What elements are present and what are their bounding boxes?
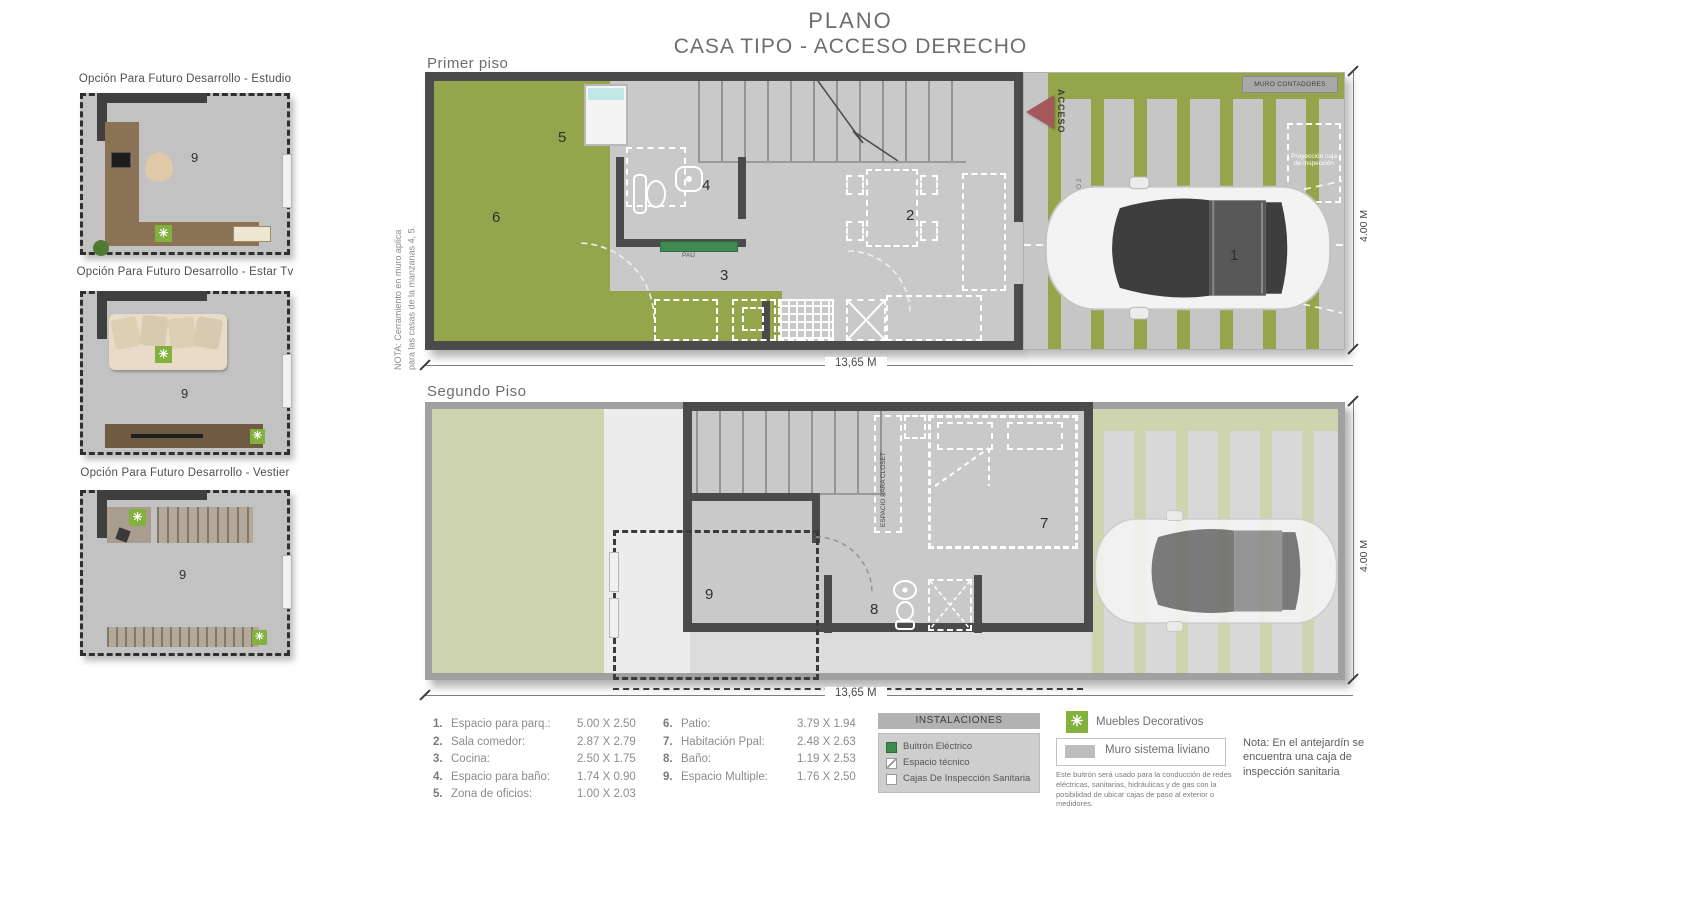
legend-name: Patio: bbox=[681, 716, 797, 734]
cushion bbox=[193, 316, 224, 350]
nightstand bbox=[904, 415, 926, 439]
side-note-line1: NOTA: Cerramiento en muro aplica bbox=[392, 140, 406, 370]
buitron-swatch-icon bbox=[886, 742, 897, 753]
width-dim-f2: 13,65 M bbox=[825, 687, 887, 699]
legend-row: 2.Sala comedor:2.87 X 2.79 bbox=[433, 734, 661, 752]
wall bbox=[974, 575, 982, 633]
room-9-dashed-zone bbox=[613, 530, 819, 680]
first-floor-plan: PAU bbox=[425, 72, 1345, 350]
instalaciones-header: INSTALACIONES bbox=[878, 713, 1040, 729]
nota-antejardin: Nota: En el antejardín se encuentra una … bbox=[1243, 736, 1375, 779]
legend-dim: 1.76 X 2.50 bbox=[797, 769, 881, 787]
muro-liviano-box: Muro sistema liviano bbox=[1056, 738, 1226, 766]
legend-item-label: Espacio técnico bbox=[903, 755, 970, 771]
muro-liviano-swatch-icon bbox=[1065, 745, 1095, 758]
wall bbox=[616, 157, 624, 247]
window bbox=[609, 552, 619, 592]
legend-item-label: Buitrón Eléctrico bbox=[903, 739, 972, 755]
sink bbox=[892, 579, 918, 601]
legend-item-buitron: Buitrón Eléctrico bbox=[886, 739, 1032, 755]
kitchen-sink-counter bbox=[732, 299, 776, 341]
side-note: NOTA: Cerramiento en muro aplica para la… bbox=[392, 140, 422, 370]
espacio-tecnico-swatch-icon bbox=[886, 758, 897, 769]
car-top-view bbox=[1042, 175, 1334, 321]
legend-item-label: Cajas De Inspección Sanitaria bbox=[903, 771, 1030, 787]
legend-name: Habitación Ppal: bbox=[681, 734, 797, 752]
legend-name: Zona de oficios: bbox=[451, 786, 577, 804]
legend-row: 6.Patio:3.79 X 1.94 bbox=[663, 716, 881, 734]
chair bbox=[846, 221, 864, 241]
chair bbox=[145, 152, 173, 182]
muebles-asterisk-icon: ✳ bbox=[155, 346, 172, 363]
first-floor-title: Primer piso bbox=[427, 55, 508, 72]
plant bbox=[93, 240, 109, 256]
height-dim-f1: 4.00 M bbox=[1358, 180, 1370, 242]
option-estartv-miniplan: ✳ 9 ✳ bbox=[80, 291, 290, 455]
muebles-asterisk-icon: ✳ bbox=[1066, 711, 1088, 733]
window bbox=[282, 354, 292, 408]
closet-rail bbox=[107, 627, 259, 647]
option-estudio-label: Opción Para Futuro Desarrollo - Estudio bbox=[60, 73, 310, 85]
legend-row: 1.Espacio para parq.:5.00 X 2.50 bbox=[433, 716, 661, 734]
door-arc bbox=[814, 535, 874, 595]
spaces-legend-col1: 1.Espacio para parq.:5.00 X 2.50 2.Sala … bbox=[433, 716, 661, 804]
desk bbox=[105, 122, 139, 226]
room-number: 9 bbox=[179, 567, 186, 582]
legend-num: 5. bbox=[433, 786, 451, 804]
dim-line-bottom-f1 bbox=[425, 365, 1353, 366]
legend-name: Espacio para parq.: bbox=[451, 716, 577, 734]
grass-band-faded bbox=[1092, 409, 1338, 431]
legend-row: 7.Habitación Ppal:2.48 X 2.63 bbox=[663, 734, 881, 752]
legend-dim: 1.00 X 2.03 bbox=[577, 786, 661, 804]
stove-grid bbox=[778, 299, 834, 341]
legend-num: 6. bbox=[663, 716, 681, 734]
car-top-view-faded bbox=[1092, 505, 1340, 637]
legend-dim: 2.87 X 2.79 bbox=[577, 734, 661, 752]
toilet bbox=[632, 169, 668, 219]
option-estartv-label: Opción Para Futuro Desarrollo - Estar Tv bbox=[60, 266, 310, 278]
legend-name: Cocina: bbox=[451, 751, 577, 769]
chair bbox=[846, 175, 864, 195]
title-line1: PLANO bbox=[0, 8, 1701, 34]
books bbox=[233, 226, 271, 242]
legend-item-espacio-tecnico: Espacio técnico bbox=[886, 755, 1032, 771]
muro-liviano-label: Muro sistema liviano bbox=[1105, 744, 1210, 756]
sink bbox=[674, 165, 704, 195]
wall bbox=[97, 291, 107, 339]
legend-name: Baño: bbox=[681, 751, 797, 769]
legend-num: 3. bbox=[433, 751, 451, 769]
bed-dashed bbox=[928, 415, 1078, 549]
dim-line-right-f1 bbox=[1353, 72, 1354, 350]
buitron-note: Este buitrón será usado para la conducci… bbox=[1056, 770, 1238, 809]
legend-row: 9.Espacio Multiple:1.76 X 2.50 bbox=[663, 769, 881, 787]
closet-dashed-zone bbox=[874, 415, 902, 533]
room-1-label: 1 bbox=[1230, 247, 1238, 264]
chair bbox=[920, 221, 938, 241]
roof-grass-pale bbox=[432, 409, 604, 673]
pillow bbox=[937, 422, 993, 450]
muebles-asterisk-icon: ✳ bbox=[155, 225, 172, 242]
spaces-legend-col2: 6.Patio:3.79 X 1.94 7.Habitación Ppal:2.… bbox=[663, 716, 881, 786]
title-line2: CASA TIPO - ACCESO DERECHO bbox=[0, 34, 1701, 59]
legend-num: 7. bbox=[663, 734, 681, 752]
cushion bbox=[140, 315, 169, 348]
legend-num: 4. bbox=[433, 769, 451, 787]
stairs-break-line bbox=[698, 81, 966, 161]
cushion bbox=[168, 317, 197, 350]
side-note-line2: para las casas de la manzanas 4, 5. bbox=[406, 140, 420, 370]
instalaciones-box: Buitrón Eléctrico Espacio técnico Cajas … bbox=[878, 733, 1040, 793]
window bbox=[282, 154, 292, 208]
legend-dim: 2.48 X 2.63 bbox=[797, 734, 881, 752]
floorplan-sheet: PLANO CASA TIPO - ACCESO DERECHO Opción … bbox=[0, 0, 1701, 900]
room-number: 9 bbox=[191, 150, 198, 165]
window bbox=[282, 555, 292, 609]
room-5-label: 5 bbox=[558, 129, 566, 146]
closet-rail bbox=[157, 507, 253, 543]
legend-dim: 5.00 X 2.50 bbox=[577, 716, 661, 734]
legend-name: Espacio para baño: bbox=[451, 769, 577, 787]
legend-name: Sala comedor: bbox=[451, 734, 577, 752]
legend-row: 8.Baño:1.19 X 2.53 bbox=[663, 751, 881, 769]
second-floor-plan: ESPACIO PARA CLOSET 7 8 bbox=[425, 402, 1345, 680]
room-7-label: 7 bbox=[1040, 515, 1048, 532]
legend-num: 8. bbox=[663, 751, 681, 769]
chair bbox=[920, 175, 938, 195]
second-floor-title: Segundo Piso bbox=[427, 383, 526, 400]
room-8-label: 8 bbox=[870, 601, 878, 618]
width-dim-f1: 13,65 M bbox=[825, 357, 887, 369]
legend-num: 2. bbox=[433, 734, 451, 752]
washer bbox=[584, 84, 628, 146]
door-arc bbox=[846, 249, 912, 315]
legend-dim: 3.79 X 1.94 bbox=[797, 716, 881, 734]
option-vestier-miniplan: ✳ 9 ✳ bbox=[80, 490, 290, 656]
legend-num: 1. bbox=[433, 716, 451, 734]
legend-name: Espacio Multiple: bbox=[681, 769, 797, 787]
closet-label: ESPACIO PARA CLOSET bbox=[880, 421, 887, 527]
entrance-opening bbox=[1014, 222, 1023, 284]
pau-label: PAU bbox=[682, 252, 695, 259]
room-9-label: 9 bbox=[705, 586, 713, 603]
dim-line-bottom-f2 bbox=[425, 695, 1353, 696]
legend-row: 5.Zona de oficios:1.00 X 2.03 bbox=[433, 786, 661, 804]
window bbox=[609, 598, 619, 638]
legend-row: 4.Espacio para baño:1.74 X 0.90 bbox=[433, 769, 661, 787]
legend-dim: 2.50 X 1.75 bbox=[577, 751, 661, 769]
laptop bbox=[111, 152, 131, 168]
door-arc bbox=[576, 241, 656, 321]
muebles-asterisk-icon: ✳ bbox=[250, 429, 265, 444]
sofa-dashed bbox=[962, 173, 1006, 291]
stairs bbox=[696, 411, 886, 495]
muebles-asterisk-icon: ✳ bbox=[252, 630, 267, 645]
option-estudio-miniplan: ✳ 9 bbox=[80, 93, 290, 255]
muebles-asterisk-icon: ✳ bbox=[129, 509, 146, 526]
kitchen-counter bbox=[654, 299, 718, 341]
room-2-label: 2 bbox=[906, 207, 914, 224]
shower-x bbox=[930, 581, 970, 629]
tv bbox=[131, 434, 203, 438]
wall bbox=[97, 291, 207, 301]
legend-row: 3.Cocina:2.50 X 1.75 bbox=[433, 751, 661, 769]
wall bbox=[97, 490, 207, 500]
cajas-swatch-icon bbox=[886, 774, 897, 785]
height-dim-f2: 4.00 M bbox=[1358, 510, 1370, 572]
kitchen-sink bbox=[742, 307, 764, 331]
parking-zone: MURO CONTADORES Proyección caja de inspe… bbox=[1023, 72, 1345, 350]
room-4-label: 4 bbox=[702, 177, 710, 194]
room-number: 9 bbox=[181, 386, 188, 401]
dim-line-right-f2 bbox=[1353, 402, 1354, 680]
room-3-label: 3 bbox=[720, 267, 728, 284]
legend-dim: 1.19 X 2.53 bbox=[797, 751, 881, 769]
wall bbox=[738, 157, 746, 219]
legend-item-cajas: Cajas De Inspección Sanitaria bbox=[886, 771, 1032, 787]
legend-num: 9. bbox=[663, 769, 681, 787]
pillow bbox=[1007, 422, 1063, 450]
house-walls: PAU bbox=[425, 72, 1023, 350]
wall bbox=[97, 93, 207, 103]
page-title: PLANO CASA TIPO - ACCESO DERECHO bbox=[0, 8, 1701, 60]
wall bbox=[97, 490, 107, 538]
washer-top bbox=[588, 88, 624, 100]
wall bbox=[692, 493, 820, 501]
toilet bbox=[892, 601, 918, 631]
shower bbox=[928, 579, 972, 631]
option-vestier-label: Opción Para Futuro Desarrollo - Vestier bbox=[60, 467, 310, 479]
buitron-bar bbox=[660, 241, 738, 252]
muebles-decorativos-label: Muebles Decorativos bbox=[1096, 716, 1203, 728]
room-6-label: 6 bbox=[492, 209, 500, 226]
legend-dim: 1.74 X 0.90 bbox=[577, 769, 661, 787]
